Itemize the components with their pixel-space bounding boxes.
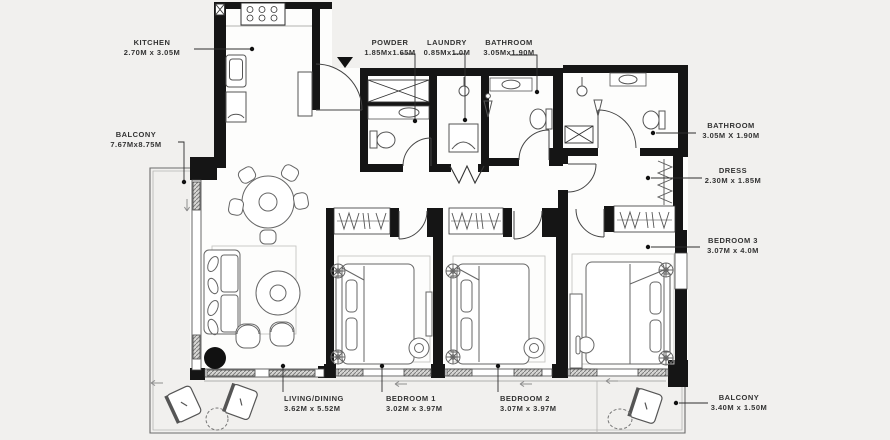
kitchen-label: KITCHEN 2.70M x 3.05M bbox=[108, 38, 196, 57]
powder-label: POWDER 1.85Mx1.65M bbox=[356, 38, 424, 57]
balcony-bottom-label: BALCONY 3.40M x 1.50M bbox=[710, 393, 768, 412]
room-dims: 3.62M x 5.52M bbox=[284, 404, 344, 414]
sofa bbox=[204, 250, 240, 336]
room-dims: 3.40M x 1.50M bbox=[710, 403, 768, 413]
dress-label: DRESS 2.30M x 1.85M bbox=[702, 166, 764, 185]
balcony-left-label: BALCONY 7.67Mx8.75M bbox=[94, 130, 178, 149]
room-dims: 3.02M x 3.97M bbox=[386, 404, 443, 414]
room-name: POWDER bbox=[356, 38, 424, 48]
entry-arrow-icon bbox=[337, 57, 353, 68]
room-dims: 3.07M x 3.97M bbox=[500, 404, 557, 414]
room-dims: 7.67Mx8.75M bbox=[94, 140, 178, 150]
room-name: LAUNDRY bbox=[419, 38, 475, 48]
room-dims: 3.05M X 1.90M bbox=[698, 131, 764, 141]
room-name: BEDROOM 1 bbox=[386, 394, 443, 404]
floor-plan: KITCHEN 2.70M x 3.05M BALCONY 7.67Mx8.75… bbox=[0, 0, 890, 440]
room-name: BATHROOM bbox=[698, 121, 764, 131]
bedroom3-label: BEDROOM 3 3.07M x 4.0M bbox=[702, 236, 764, 255]
bedroom1-label: BEDROOM 1 3.02M x 3.97M bbox=[386, 394, 443, 413]
room-dims: 3.07M x 4.0M bbox=[702, 246, 764, 256]
room-name: BEDROOM 3 bbox=[702, 236, 764, 246]
room-dims: 1.85Mx1.65M bbox=[356, 48, 424, 58]
room-name: LIVING/DINING bbox=[284, 394, 344, 404]
bedroom3-furniture bbox=[570, 254, 674, 368]
room-dims: 0.85Mx1.0M bbox=[419, 48, 475, 58]
coffee-table bbox=[256, 271, 300, 315]
room-name: BEDROOM 2 bbox=[500, 394, 557, 404]
room-dims: 2.70M x 3.05M bbox=[108, 48, 196, 58]
room-dims: 2.30M x 1.85M bbox=[702, 176, 764, 186]
bedroom2-label: BEDROOM 2 3.07M x 3.97M bbox=[500, 394, 557, 413]
floor-plan-drawing bbox=[0, 0, 890, 440]
room-dims: 3.05Mx1.90M bbox=[474, 48, 544, 58]
plant-icon bbox=[204, 347, 226, 369]
bathroom-top-label: BATHROOM 3.05Mx1.90M bbox=[474, 38, 544, 57]
room-name: BALCONY bbox=[94, 130, 178, 140]
room-name: KITCHEN bbox=[108, 38, 196, 48]
room-name: BATHROOM bbox=[474, 38, 544, 48]
laundry-label: LAUNDRY 0.85Mx1.0M bbox=[419, 38, 475, 57]
living-dining-label: LIVING/DINING 3.62M x 5.52M bbox=[284, 394, 344, 413]
room-name: BALCONY bbox=[710, 393, 768, 403]
bathroom-right-label: BATHROOM 3.05M X 1.90M bbox=[698, 121, 764, 140]
room-name: DRESS bbox=[702, 166, 764, 176]
